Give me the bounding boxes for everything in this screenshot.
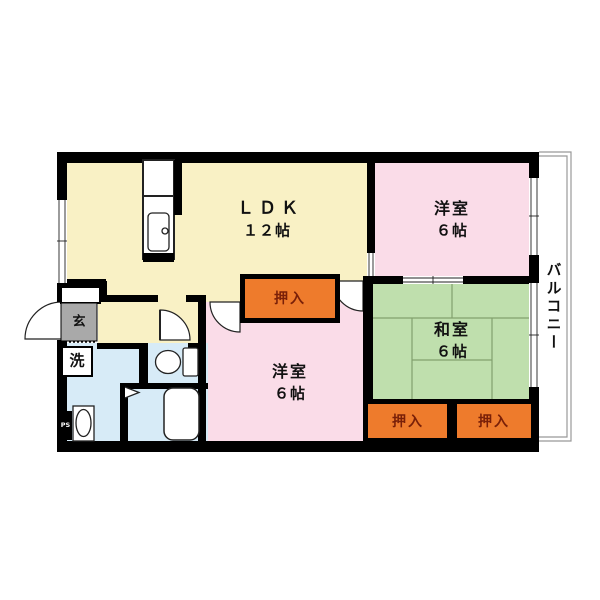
washbasin-bowl: [76, 410, 91, 437]
label-closet-left: 押入: [392, 415, 424, 429]
wall-ldk-western-upper: [367, 158, 375, 253]
label-western-lower-name: 洋室: [272, 364, 308, 380]
wall-mid-b: [463, 276, 536, 284]
label-laundry: 洗: [69, 354, 84, 369]
label-western-upper-name: 洋室: [434, 201, 470, 217]
label-pipe-space: PS: [61, 422, 70, 429]
label-ldk-name: ＬＤＫ: [237, 201, 303, 218]
wall-right-a: [529, 152, 539, 178]
wall-left-a: [57, 152, 67, 200]
label-western-upper-size: ６帖: [436, 224, 468, 239]
label-balcony: バルコニー: [546, 262, 561, 352]
shoe-cabinet: [61, 287, 100, 303]
label-entrance: 玄: [72, 316, 85, 329]
toilet-tank: [183, 348, 198, 376]
room-western-upper: [371, 158, 536, 281]
label-ldk-size: １２帖: [243, 224, 291, 239]
kitchen-counter-base: [143, 253, 174, 262]
floorplan-page: ＬＤＫ １２帖 洋室 ６帖 洋室 ６帖 和室 ６帖 押入 押入 押入 玄 洗 P…: [0, 0, 600, 600]
label-closet-hall: 押入: [274, 292, 306, 306]
label-western-lower-size: ６帖: [274, 387, 306, 402]
wall-hall-b: [186, 295, 200, 302]
kitchen-wall-stub: [174, 160, 182, 215]
wall-top: [57, 152, 539, 163]
entrance-door-arc: [25, 302, 62, 339]
toilet-bowl: [156, 351, 181, 374]
kitchen-faucet: [162, 228, 168, 234]
wall-hall-a: [106, 295, 158, 302]
bathtub: [164, 388, 199, 440]
label-japanese-name: 和室: [434, 322, 470, 338]
room-ldk: [62, 158, 371, 281]
label-japanese-size: ６帖: [436, 345, 468, 360]
wall-bath-top: [120, 383, 208, 389]
label-closet-right: 押入: [478, 415, 510, 429]
wall-toilet-west: [139, 343, 148, 389]
wall-wet-top-a: [97, 343, 145, 349]
